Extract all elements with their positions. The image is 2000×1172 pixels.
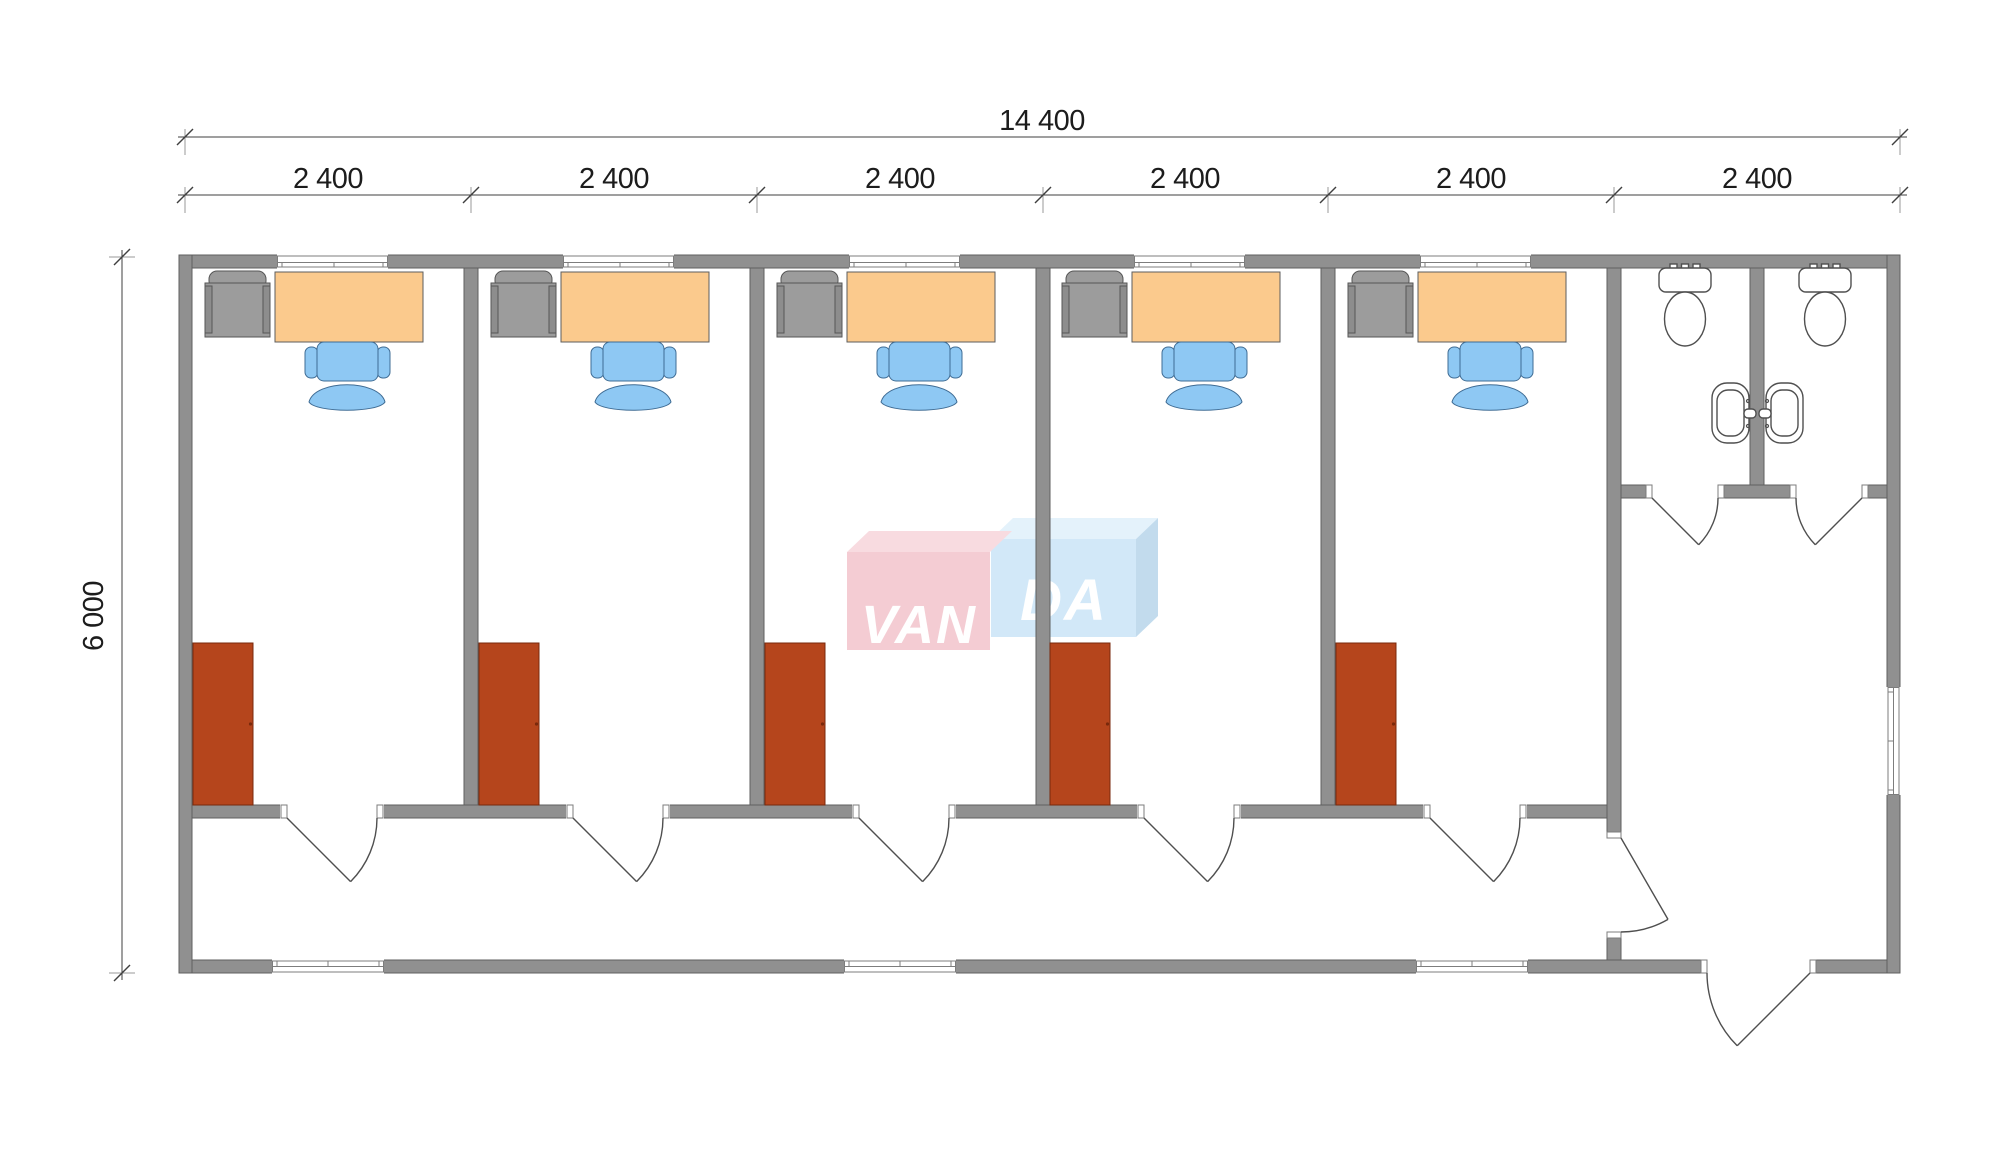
wall-office-divider <box>464 268 478 805</box>
corridor-lobby-door <box>1606 832 1668 938</box>
wall-bottom <box>179 960 1900 973</box>
window-icon <box>1886 687 1901 795</box>
vanda-logo-watermark: DA VAN <box>847 518 1158 655</box>
window-icon <box>1416 959 1528 974</box>
dimension-label-height: 6 000 <box>78 581 110 651</box>
window-icon <box>844 959 956 974</box>
wall-office-divider <box>1036 268 1050 805</box>
window-icon <box>272 959 384 974</box>
dimension-label-bay: 2 400 <box>865 163 935 195</box>
entrance-door <box>1701 959 1816 1046</box>
floor-plan-sheet: 14 400 2 400 2 400 2 400 2 400 2 400 2 4… <box>0 0 2000 1172</box>
vanda-logo-text-right: DA <box>1020 568 1108 633</box>
toilet-icon <box>1659 264 1711 346</box>
interior-walls <box>192 268 1887 960</box>
wc-door-right <box>1790 484 1868 545</box>
sink-icon <box>1759 383 1803 443</box>
dimension-label-bay: 2 400 <box>1722 163 1792 195</box>
dimension-label-bay: 2 400 <box>579 163 649 195</box>
wall-left <box>179 255 192 973</box>
vanda-logo-text-left: VAN <box>861 595 977 655</box>
wall-office-divider <box>1321 268 1335 805</box>
building <box>179 254 1901 1046</box>
dimension-label-bay: 2 400 <box>293 163 363 195</box>
wall-office-divider <box>750 268 764 805</box>
vanda-logo-blue-box: DA <box>991 518 1158 637</box>
dimension-label-total: 14 400 <box>999 105 1085 137</box>
office-room-1 <box>193 254 423 882</box>
wc-door-left <box>1646 484 1724 545</box>
dimension-height: 6 000 <box>78 249 135 981</box>
floor-plan-drawing: 14 400 2 400 2 400 2 400 2 400 2 400 2 4… <box>0 0 2000 1172</box>
dimension-total-width: 14 400 <box>177 105 1908 155</box>
vanda-logo-pink-box: VAN <box>847 531 1012 655</box>
office-room-5 <box>1336 254 1566 882</box>
office-room-2 <box>479 254 709 882</box>
toilet-icon <box>1799 264 1851 346</box>
dimension-bays: 2 400 2 400 2 400 2 400 2 400 2 400 <box>177 163 1908 213</box>
wall-wc-divider <box>1750 268 1764 498</box>
dimension-label-bay: 2 400 <box>1150 163 1220 195</box>
wall-top <box>179 255 1900 268</box>
dimension-label-bay: 2 400 <box>1436 163 1506 195</box>
sink-icon <box>1712 383 1756 443</box>
wall-right <box>1887 255 1900 973</box>
